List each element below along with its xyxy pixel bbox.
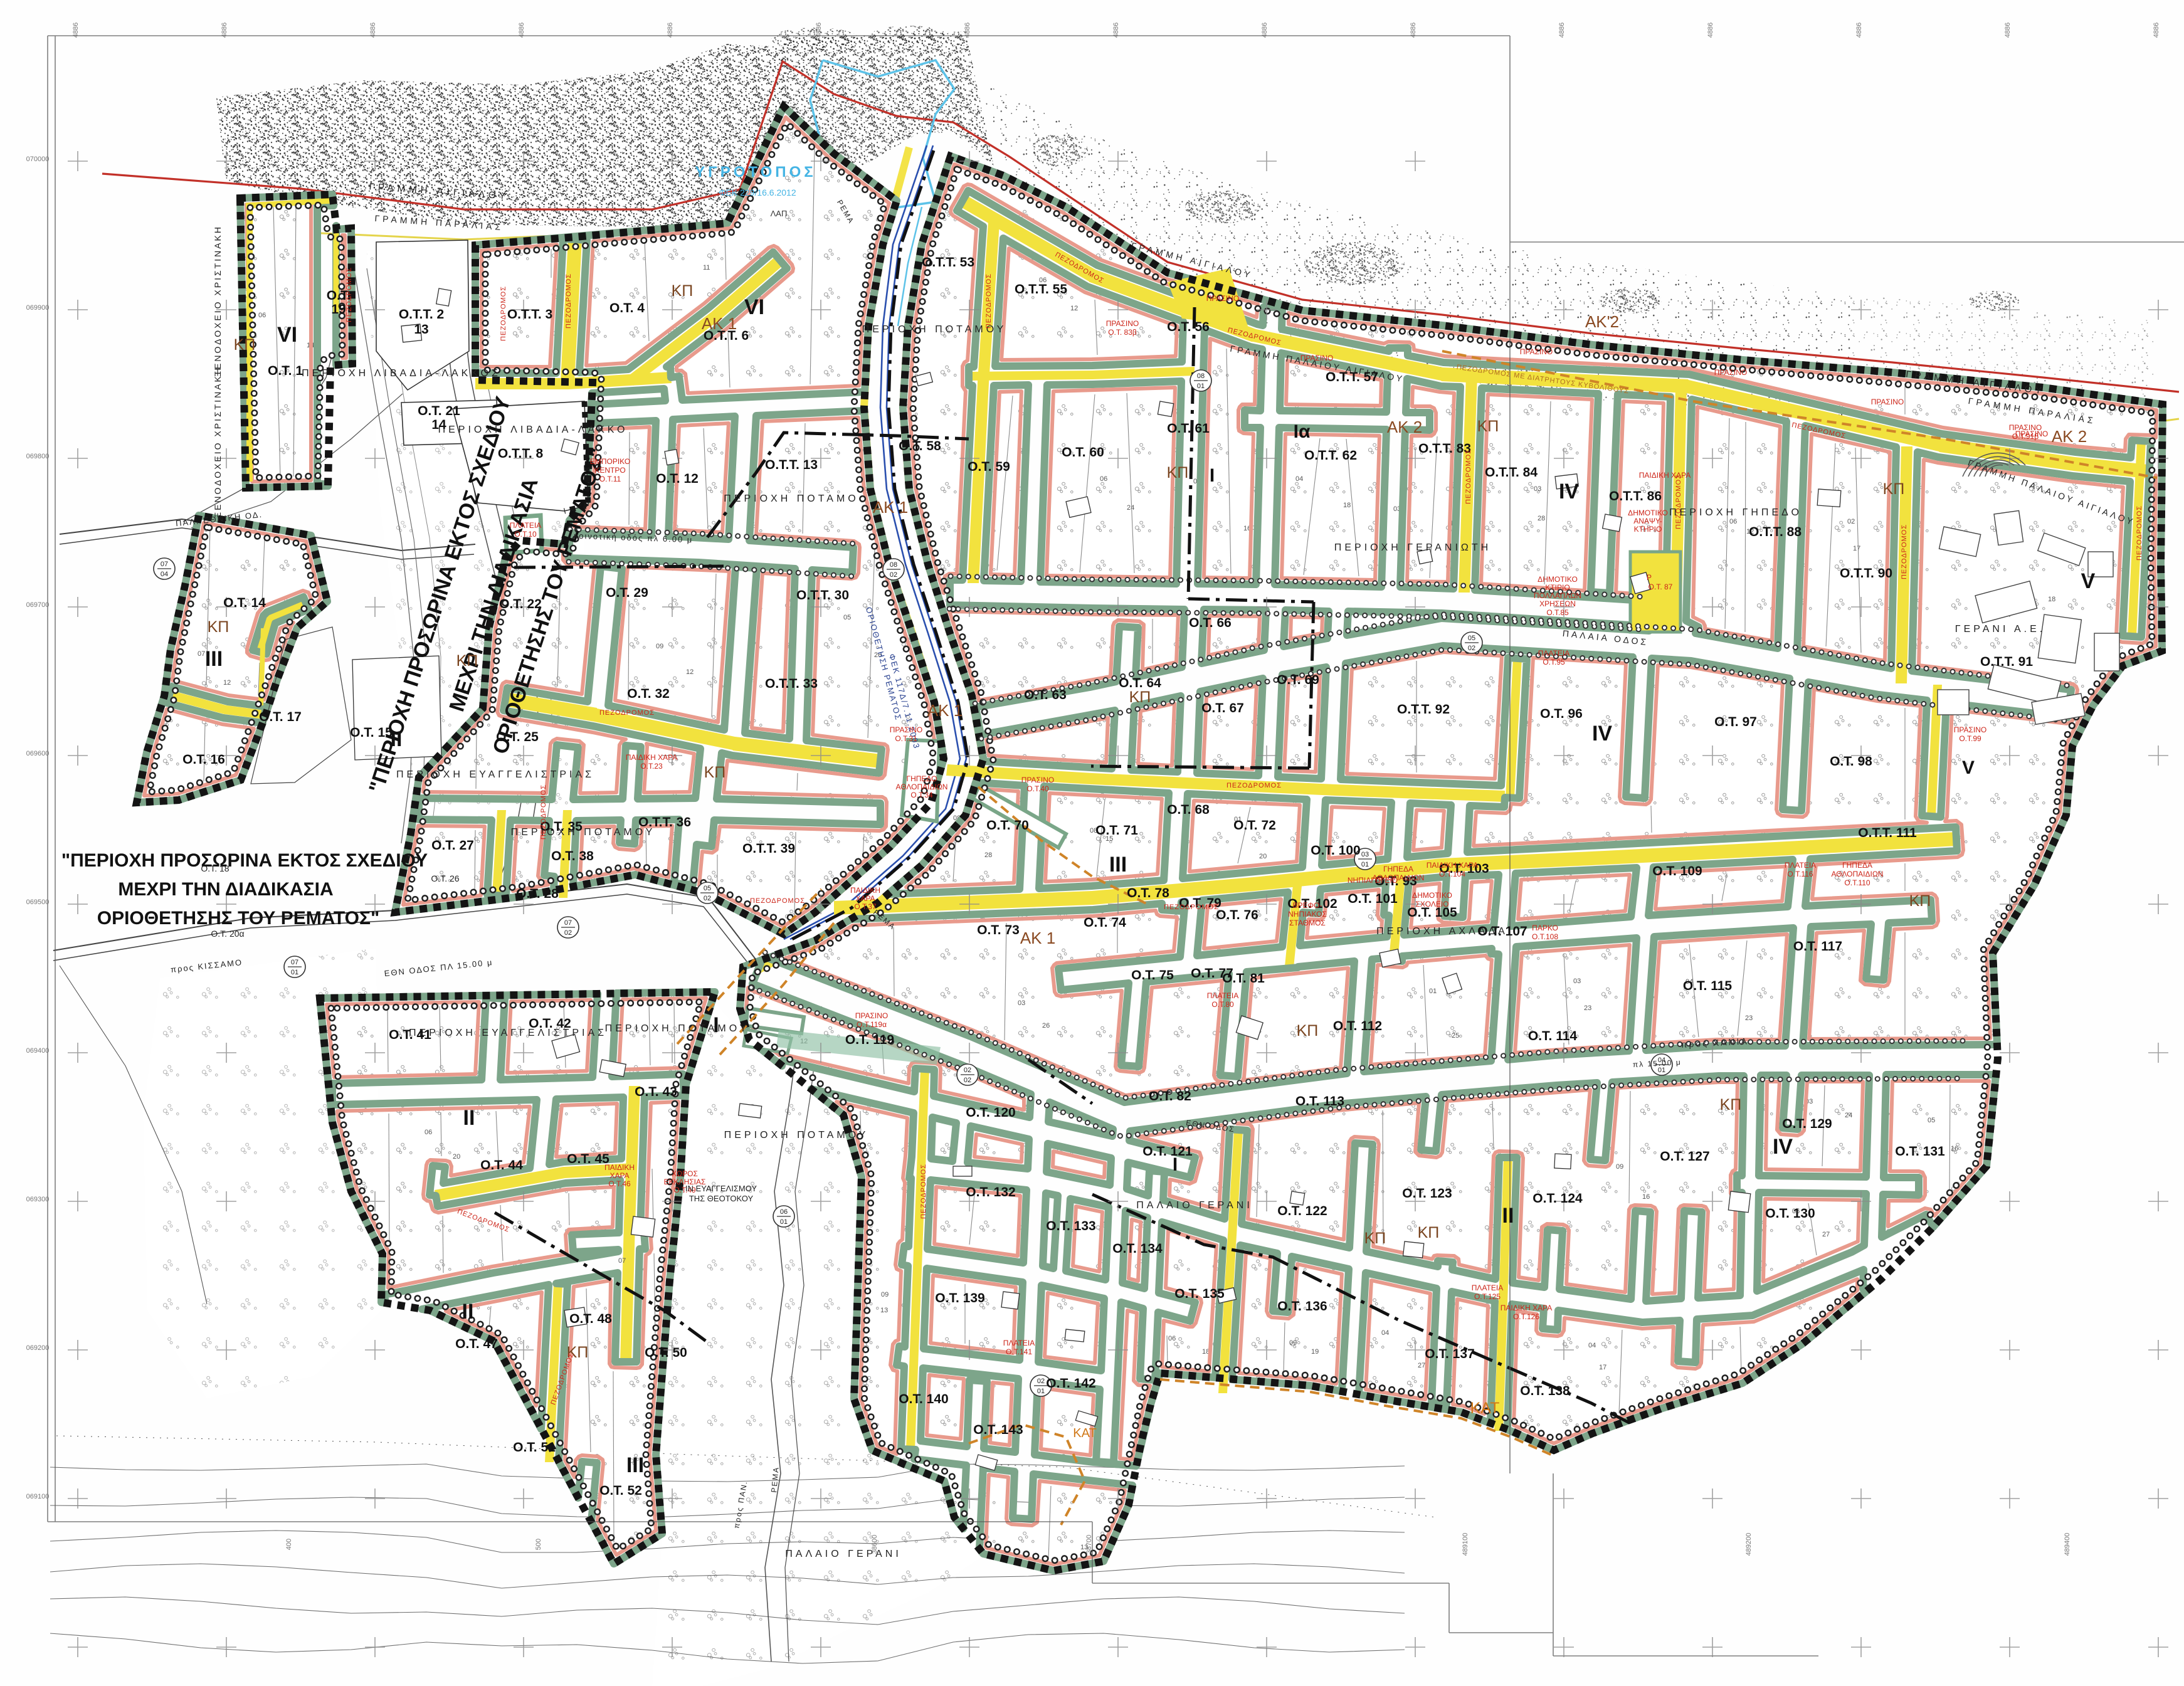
svg-text:O.T. 122: O.T. 122 bbox=[1277, 1204, 1327, 1218]
svg-text:O.T. 124: O.T. 124 bbox=[1532, 1191, 1583, 1206]
svg-text:O.T. 71: O.T. 71 bbox=[1095, 823, 1138, 838]
svg-text:III: III bbox=[205, 647, 223, 671]
svg-text:ΠΕΡΙΟΧΗ ΠΟΤΑΜΟΥ: ΠΕΡΙΟΧΗ ΠΟΤΑΜΟΥ bbox=[511, 827, 656, 838]
svg-text:ΠΕΖΟΔΡΟΜΟΣ: ΠΕΖΟΔΡΟΜΟΣ bbox=[1465, 449, 1472, 504]
svg-text:O.T.T. 53: O.T.T. 53 bbox=[922, 255, 974, 270]
svg-text:ΚΠ: ΚΠ bbox=[456, 652, 478, 670]
svg-text:O.T. 121: O.T. 121 bbox=[1142, 1144, 1193, 1159]
svg-text:4886: 4886 bbox=[1855, 23, 1863, 38]
svg-text:O.T. 56: O.T. 56 bbox=[1167, 320, 1210, 334]
svg-text:O.T. 44: O.T. 44 bbox=[480, 1158, 523, 1172]
svg-text:V: V bbox=[2081, 569, 2096, 593]
svg-text:069800: 069800 bbox=[26, 453, 50, 460]
svg-text:O.T. 51: O.T. 51 bbox=[513, 1440, 556, 1455]
svg-text:O.T. 130: O.T. 130 bbox=[1765, 1206, 1815, 1221]
svg-text:Ο.Τ.40: Ο.Τ.40 bbox=[1026, 784, 1049, 793]
svg-text:ΠΕΖΟΔΡΟΜΟΣ: ΠΕΖΟΔΡΟΜΟΣ bbox=[2136, 505, 2143, 561]
svg-text:II: II bbox=[1502, 1204, 1514, 1228]
svg-text:ΓΗΠΕΔΑ: ΓΗΠΕΔΑ bbox=[1383, 865, 1413, 873]
svg-text:ΠΕΖΟΔΡΟΜΟΣ: ΠΕΖΟΔΡΟΜΟΣ bbox=[985, 273, 993, 329]
svg-text:Ια: Ια bbox=[1294, 421, 1311, 442]
svg-text:ΜΕΧΡΙ ΤΗΝ ΔΙΑΔΙΚΑΣΙΑ: ΜΕΧΡΙ ΤΗΝ ΔΙΑΔΙΚΑΣΙΑ bbox=[118, 879, 333, 900]
svg-text:ΚΕΝΤΡΟ: ΚΕΝΤΡΟ bbox=[594, 466, 625, 475]
svg-text:ΚΠ: ΚΠ bbox=[1129, 688, 1151, 706]
svg-text:ΑΚ 1: ΑΚ 1 bbox=[873, 498, 908, 517]
svg-text:01: 01 bbox=[1037, 1388, 1045, 1395]
svg-text:20: 20 bbox=[1259, 853, 1267, 860]
svg-text:ΠΛΑΤΕΙΑ: ΠΛΑΤΕΙΑ bbox=[510, 521, 541, 530]
svg-text:VI: VI bbox=[744, 295, 764, 319]
svg-text:Ο.Τ.23: Ο.Τ.23 bbox=[640, 762, 663, 771]
svg-text:ΚΠ: ΚΠ bbox=[704, 764, 726, 781]
svg-text:O.T. 76: O.T. 76 bbox=[1216, 908, 1258, 922]
svg-text:ΠΕΡΙΟΧΗ ΠΟΤΑΜΟΥ: ΠΕΡΙΟΧΗ ΠΟΤΑΜΟΥ bbox=[605, 1023, 750, 1034]
svg-text:O.T.T. 83: O.T.T. 83 bbox=[1418, 441, 1471, 456]
svg-text:ΤΗΣ ΘΕΟΤΟΚΟΥ: ΤΗΣ ΘΕΟΤΟΚΟΥ bbox=[689, 1194, 754, 1203]
svg-text:O.T. 27: O.T. 27 bbox=[431, 838, 474, 853]
svg-text:ΚΠ: ΚΠ bbox=[234, 336, 256, 354]
svg-text:12: 12 bbox=[1070, 305, 1078, 312]
svg-text:Ο.Τ.85: Ο.Τ.85 bbox=[1546, 608, 1569, 617]
svg-text:ΠΕΖΟΔΡΟΜΟΣ: ΠΕΖΟΔΡΟΜΟΣ bbox=[565, 273, 572, 329]
svg-text:O.T. 73: O.T. 73 bbox=[977, 923, 1020, 937]
svg-text:V: V bbox=[1962, 757, 1975, 778]
svg-text:26: 26 bbox=[1042, 1022, 1050, 1030]
svg-text:4886: 4886 bbox=[221, 23, 228, 38]
svg-text:Ο.Τ.80: Ο.Τ.80 bbox=[1211, 1000, 1234, 1009]
svg-text:02: 02 bbox=[564, 929, 572, 937]
svg-text:ΠΛΑΤΕΙΑ: ΠΛΑΤΕΙΑ bbox=[1207, 991, 1238, 1000]
svg-text:O.T. 135: O.T. 135 bbox=[1174, 1287, 1225, 1301]
svg-text:O.T. 98: O.T. 98 bbox=[1830, 754, 1872, 769]
svg-text:O.T. 78: O.T. 78 bbox=[1127, 886, 1169, 900]
svg-text:Ο.Τ. 26: Ο.Τ. 26 bbox=[431, 873, 459, 883]
svg-text:Ο.Τ.108: Ο.Τ.108 bbox=[1532, 932, 1558, 941]
svg-text:O.T. 100: O.T. 100 bbox=[1311, 843, 1360, 858]
svg-text:4886: 4886 bbox=[1261, 23, 1269, 38]
svg-text:O.T. 43: O.T. 43 bbox=[635, 1085, 677, 1099]
svg-text:O.T.T. 39: O.T.T. 39 bbox=[742, 841, 795, 856]
svg-text:04: 04 bbox=[1381, 1329, 1389, 1337]
svg-text:ΠΡΑΣΙΝΟ: ΠΡΑΣΙΝΟ bbox=[2015, 429, 2049, 438]
svg-text:III: III bbox=[626, 1453, 644, 1477]
svg-text:O.T.T. 2: O.T.T. 2 bbox=[399, 307, 444, 322]
svg-text:O.T.T. 88: O.T.T. 88 bbox=[1749, 525, 1802, 539]
svg-text:Ο.Τ.95: Ο.Τ.95 bbox=[1543, 658, 1565, 666]
svg-text:ΠΡΑΣΙΝΟ: ΠΡΑΣΙΝΟ bbox=[1871, 398, 1904, 406]
svg-text:ΠΡΑΣΙΝΟ: ΠΡΑΣΙΝΟ bbox=[1954, 725, 1987, 734]
svg-text:O.T.T. 90: O.T.T. 90 bbox=[1840, 566, 1892, 581]
svg-text:Ρ: Ρ bbox=[1647, 573, 1652, 582]
svg-text:ΦΕΚ 229/16.6.2012: ΦΕΚ 229/16.6.2012 bbox=[719, 187, 796, 198]
svg-text:ΑΘΛΟΠΑΙΔΙΩΝ: ΑΘΛΟΠΑΙΔΙΩΝ bbox=[1832, 870, 1884, 878]
svg-text:489400: 489400 bbox=[2064, 1533, 2071, 1556]
svg-text:ΠΕΖΟΔΡΟΜΟΣ: ΠΕΖΟΔΡΟΜΟΣ bbox=[1227, 782, 1282, 789]
svg-text:Ο.Τ.116: Ο.Τ.116 bbox=[1787, 870, 1813, 878]
svg-text:ΠΕΡΙΟΧΗ ΛΙΒΑΔΙΑ-ΛΑΚΚΟ: ΠΕΡΙΟΧΗ ΛΙΒΑΔΙΑ-ΛΑΚΚΟ bbox=[438, 424, 628, 435]
svg-text:O.T.T. 8: O.T.T. 8 bbox=[498, 446, 544, 461]
svg-text:ΠΑΙΔΙΚΗ ΧΑΡΑ: ΠΑΙΔΙΚΗ ΧΑΡΑ bbox=[1427, 861, 1478, 870]
svg-text:38700: 38700 bbox=[1085, 1535, 1093, 1554]
svg-text:ΔΗΜΟΤΙΚΟ: ΔΗΜΟΤΙΚΟ bbox=[1538, 575, 1578, 584]
svg-text:ΙΝ ΕΥΑΓΓΕΛΙΣΜΟΥ: ΙΝ ΕΥΑΓΓΕΛΙΣΜΟΥ bbox=[685, 1184, 757, 1193]
svg-text:06: 06 bbox=[1168, 1335, 1176, 1342]
svg-text:O.T. 114: O.T. 114 bbox=[1528, 1029, 1578, 1043]
svg-text:02: 02 bbox=[964, 1067, 971, 1074]
svg-text:ΛΑΠ: ΛΑΠ bbox=[771, 209, 788, 218]
svg-text:ΧΩΡΟΣ: ΧΩΡΟΣ bbox=[672, 1169, 698, 1178]
svg-text:O.T. 58: O.T. 58 bbox=[899, 439, 941, 453]
svg-text:01: 01 bbox=[1361, 861, 1369, 868]
svg-text:ΠΡΑΣΙΝΟ: ΠΡΑΣΙΝΟ bbox=[1106, 319, 1139, 328]
svg-text:O.T. 38: O.T. 38 bbox=[551, 849, 594, 863]
svg-text:O.T. 32: O.T. 32 bbox=[627, 687, 670, 701]
svg-text:O.T. 136: O.T. 136 bbox=[1277, 1299, 1327, 1314]
svg-text:4886: 4886 bbox=[667, 23, 674, 38]
svg-text:O.T. 96: O.T. 96 bbox=[1540, 707, 1583, 721]
svg-text:4886: 4886 bbox=[1558, 23, 1566, 38]
svg-text:III: III bbox=[1109, 853, 1127, 877]
svg-text:489100: 489100 bbox=[1462, 1533, 1469, 1556]
svg-text:O.T. 66: O.T. 66 bbox=[1189, 616, 1232, 630]
svg-text:ΠΕΡΙΟΧΗ ΛΙΒΑΔΙΑ-ΛΑΚΚΟΣ: ΠΕΡΙΟΧΗ ΛΙΒΑΔΙΑ-ΛΑΚΚΟΣ bbox=[302, 368, 501, 379]
svg-text:Ο.Τ. 20α: Ο.Τ. 20α bbox=[211, 929, 244, 939]
svg-text:07: 07 bbox=[564, 919, 572, 927]
svg-text:ΚΑΤ: ΚΑΤ bbox=[1073, 1426, 1096, 1440]
svg-text:069900: 069900 bbox=[26, 304, 50, 312]
svg-text:O.T. 115: O.T. 115 bbox=[1683, 979, 1733, 993]
svg-text:Ο.Τ.119α: Ο.Τ.119α bbox=[857, 1020, 887, 1029]
svg-text:O.T. 25: O.T. 25 bbox=[496, 730, 539, 744]
svg-text:Ο.Τ.110: Ο.Τ.110 bbox=[1844, 878, 1870, 887]
svg-text:ΚΠ: ΚΠ bbox=[1477, 418, 1499, 435]
svg-text:O.T. 97: O.T. 97 bbox=[1714, 715, 1757, 729]
svg-text:O.T.T. 30: O.T.T. 30 bbox=[796, 588, 849, 603]
svg-text:ΓΗΠΕΔΟ: ΓΗΠΕΔΟ bbox=[906, 774, 937, 783]
svg-text:4886: 4886 bbox=[1707, 23, 1714, 38]
svg-text:09: 09 bbox=[656, 643, 663, 650]
svg-text:08: 08 bbox=[890, 561, 897, 569]
svg-text:06: 06 bbox=[1100, 475, 1107, 483]
svg-text:05: 05 bbox=[704, 885, 711, 892]
svg-text:O.T. 45: O.T. 45 bbox=[567, 1152, 609, 1166]
svg-text:O.T. 61: O.T. 61 bbox=[1167, 421, 1210, 436]
svg-text:05: 05 bbox=[1928, 1117, 1935, 1124]
svg-text:ΠΛΑΤΕΙΑ: ΠΛΑΤΕΙΑ bbox=[1472, 1283, 1503, 1292]
svg-text:ΥΓΡΟΤΟΠΟΣ: ΥΓΡΟΤΟΠΟΣ bbox=[695, 164, 816, 181]
svg-text:ΣΤΑΘΜΟΣ: ΣΤΑΘΜΟΣ bbox=[1289, 919, 1326, 927]
svg-text:06: 06 bbox=[780, 1208, 788, 1216]
svg-text:ΑΝΑΨΥ-: ΑΝΑΨΥ- bbox=[1633, 517, 1662, 525]
svg-text:Ο.Τ.99: Ο.Τ.99 bbox=[1959, 734, 1981, 743]
svg-text:ΧΑΡΑ: ΧΑΡΑ bbox=[855, 894, 875, 903]
svg-text:O.T. 21: O.T. 21 bbox=[418, 404, 460, 418]
svg-text:ΚΠ: ΚΠ bbox=[1720, 1096, 1742, 1114]
svg-text:O.T.T. 62: O.T.T. 62 bbox=[1304, 448, 1357, 463]
svg-text:O.T. 59: O.T. 59 bbox=[968, 460, 1010, 474]
svg-text:ΠΡΑΣΙΝΟ: ΠΡΑΣΙΝΟ bbox=[1206, 294, 1240, 303]
svg-text:ΠΕΖΟΔΡΟΜΟΣ: ΠΕΖΟΔΡΟΜΟΣ bbox=[500, 286, 507, 341]
svg-text:II: II bbox=[462, 1300, 474, 1324]
svg-text:ΠΡΑΣΙΝΟ: ΠΡΑΣΙΝΟ bbox=[1300, 354, 1334, 362]
svg-text:Ο.Τ.141: Ο.Τ.141 bbox=[1006, 1347, 1032, 1356]
svg-text:ΧΡΗΣΕΩΝ: ΧΡΗΣΕΩΝ bbox=[1539, 599, 1576, 608]
svg-text:O.T. 67: O.T. 67 bbox=[1201, 701, 1244, 715]
svg-text:ΠΕΖΟΔΡΟΜΟΣ: ΠΕΖΟΔΡΟΜΟΣ bbox=[346, 267, 353, 322]
svg-text:IV: IV bbox=[1592, 722, 1612, 746]
svg-text:VI: VI bbox=[277, 323, 297, 347]
svg-text:ΑΚ'2: ΑΚ'2 bbox=[1585, 312, 1619, 331]
svg-text:ΣΧΟΛΕΙΟ: ΣΧΟΛΕΙΟ bbox=[1415, 900, 1448, 909]
svg-text:19: 19 bbox=[331, 302, 346, 317]
svg-text:4886: 4886 bbox=[369, 23, 377, 38]
svg-text:ΑΚ 1: ΑΚ 1 bbox=[1020, 929, 1055, 947]
svg-text:O.T.T. 36: O.T.T. 36 bbox=[638, 815, 691, 830]
svg-text:24: 24 bbox=[1127, 504, 1134, 512]
svg-text:07: 07 bbox=[618, 1257, 626, 1265]
svg-text:ΚΠ: ΚΠ bbox=[1297, 1022, 1319, 1040]
svg-text:ΚΠ: ΚΠ bbox=[1364, 1230, 1386, 1247]
svg-text:4886: 4886 bbox=[1410, 23, 1417, 38]
svg-text:09: 09 bbox=[1616, 1163, 1623, 1171]
svg-text:Ο.Τ.11: Ο.Τ.11 bbox=[599, 475, 621, 483]
svg-text:O.T. 42: O.T. 42 bbox=[529, 1016, 571, 1031]
svg-text:ΠΛΑΤΕΙΑ: ΠΛΑΤΕΙΑ bbox=[1003, 1339, 1035, 1347]
svg-text:ΠΡΑΣΙΝΟ: ΠΡΑΣΙΝΟ bbox=[1714, 368, 1748, 377]
svg-text:O.T. 28: O.T. 28 bbox=[516, 887, 559, 901]
svg-text:ΠΛΑΤΕΙΑ: ΠΛΑΤΕΙΑ bbox=[1785, 861, 1816, 870]
svg-text:ΟΡΙΟΘΕΤΗΣΗΣ ΤΟΥ ΡΕΜΑΤΟΣ": ΟΡΙΟΘΕΤΗΣΗΣ ΤΟΥ ΡΕΜΑΤΟΣ" bbox=[97, 908, 380, 929]
svg-text:O.T.T. 84: O.T.T. 84 bbox=[1485, 465, 1538, 480]
svg-text:17: 17 bbox=[1853, 545, 1860, 552]
svg-text:O.T. 139: O.T. 139 bbox=[935, 1291, 984, 1305]
svg-text:O.T. 138: O.T. 138 bbox=[1520, 1384, 1570, 1398]
svg-text:ΚΠ: ΚΠ bbox=[1418, 1224, 1440, 1241]
svg-text:4886: 4886 bbox=[2153, 23, 2160, 38]
svg-text:03: 03 bbox=[1534, 485, 1541, 493]
svg-text:O.T. 41: O.T. 41 bbox=[389, 1028, 431, 1042]
svg-text:O.T. 68: O.T. 68 bbox=[1167, 803, 1210, 817]
svg-text:O.T.T. 3: O.T.T. 3 bbox=[507, 307, 552, 322]
svg-text:070000: 070000 bbox=[26, 155, 50, 163]
svg-text:ΑΚ 2: ΑΚ 2 bbox=[1387, 418, 1422, 436]
svg-text:ΠΑΛΑΙΟ ΓΕΡΑΝΙ: ΠΑΛΑΙΟ ΓΕΡΑΝΙ bbox=[785, 1549, 902, 1559]
svg-text:O.T. 109: O.T. 109 bbox=[1652, 864, 1702, 878]
svg-text:O.T. 120: O.T. 120 bbox=[966, 1105, 1015, 1120]
svg-text:O.T. 140: O.T. 140 bbox=[899, 1392, 948, 1406]
svg-text:O.T. 22: O.T. 22 bbox=[499, 597, 542, 611]
svg-text:03: 03 bbox=[1361, 851, 1369, 858]
svg-text:O.T. 143: O.T. 143 bbox=[973, 1423, 1023, 1437]
svg-text:O.T. 60: O.T. 60 bbox=[1062, 445, 1104, 460]
svg-text:02: 02 bbox=[1468, 645, 1475, 652]
svg-text:Ο.Τ.31: Ο.Τ.31 bbox=[895, 734, 917, 743]
svg-text:O.T. 17: O.T. 17 bbox=[259, 710, 302, 724]
svg-text:O.T. 12: O.T. 12 bbox=[656, 472, 699, 486]
svg-text:Ο.Τ.10: Ο.Τ.10 bbox=[514, 530, 537, 539]
svg-text:O.T. 70: O.T. 70 bbox=[986, 818, 1029, 833]
svg-text:ΝΗΠΙΑΚΟΣ: ΝΗΠΙΑΚΟΣ bbox=[1288, 910, 1327, 919]
svg-text:ΠΕΖΟΔΡΟΜΟΣ: ΠΕΖΟΔΡΟΜΟΣ bbox=[599, 709, 655, 717]
svg-text:ΠΑΙΔΙΚΗ: ΠΑΙΔΙΚΗ bbox=[850, 886, 880, 895]
svg-text:489200: 489200 bbox=[1745, 1533, 1753, 1556]
svg-text:500: 500 bbox=[535, 1539, 542, 1550]
svg-text:ΔΗΜΟΤΙΚΟ: ΔΗΜΟΤΙΚΟ bbox=[1628, 508, 1668, 517]
svg-text:O.T.T. 91: O.T.T. 91 bbox=[1980, 655, 2033, 669]
svg-text:24: 24 bbox=[1845, 1112, 1852, 1119]
svg-text:O.T. 131: O.T. 131 bbox=[1895, 1144, 1945, 1159]
svg-text:069200: 069200 bbox=[26, 1344, 50, 1352]
svg-text:12: 12 bbox=[223, 679, 231, 687]
svg-text:O.T. 72: O.T. 72 bbox=[1233, 818, 1276, 833]
svg-text:O.T. 63: O.T. 63 bbox=[1024, 688, 1067, 702]
svg-text:04: 04 bbox=[1295, 475, 1303, 483]
svg-text:ΠΕΡΙΟΧΗ ΠΟΤΑΜΟ: ΠΕΡΙΟΧΗ ΠΟΤΑΜΟ bbox=[724, 493, 859, 504]
svg-text:ΑΘΛΟΠΑΙΔΙΩΝ: ΑΘΛΟΠΑΙΔΙΩΝ bbox=[896, 782, 948, 791]
svg-text:04: 04 bbox=[161, 571, 168, 578]
svg-text:O.T. 142: O.T. 142 bbox=[1046, 1376, 1095, 1391]
svg-text:ΧΑΡΑ: ΧΑΡΑ bbox=[609, 1171, 629, 1180]
svg-text:IV: IV bbox=[1773, 1135, 1793, 1159]
svg-text:11: 11 bbox=[703, 264, 710, 271]
svg-text:06: 06 bbox=[1729, 518, 1737, 525]
svg-text:ΠΕΖΟΔΡΟΜΟΣ: ΠΕΖΟΔΡΟΜΟΣ bbox=[920, 1164, 927, 1219]
svg-text:09: 09 bbox=[881, 1291, 889, 1299]
svg-text:01: 01 bbox=[291, 969, 298, 976]
svg-text:069600: 069600 bbox=[26, 750, 50, 757]
svg-text:ΠΑΛΑΙΟ ΓΕΡΑΝΙ: ΠΑΛΑΙΟ ΓΕΡΑΝΙ bbox=[1136, 1200, 1253, 1211]
svg-text:O.T.T. 33: O.T.T. 33 bbox=[765, 677, 818, 691]
svg-text:I: I bbox=[1210, 465, 1215, 486]
svg-text:01: 01 bbox=[1429, 988, 1437, 995]
svg-text:O.T. 82: O.T. 82 bbox=[1149, 1089, 1191, 1104]
svg-text:Ο.Τ. 87: Ο.Τ. 87 bbox=[1649, 582, 1673, 591]
svg-text:069300: 069300 bbox=[26, 1196, 50, 1203]
svg-text:ΠΕΖΟΔΡΟΜΟΣ: ΠΕΖΟΔΡΟΜΟΣ bbox=[750, 897, 805, 905]
svg-text:O.T. 113: O.T. 113 bbox=[1295, 1094, 1344, 1109]
svg-text:07: 07 bbox=[291, 959, 298, 966]
svg-text:ΠΑΙΔΙΚΗ ΧΑΡΑ: ΠΑΙΔΙΚΗ ΧΑΡΑ bbox=[1639, 471, 1691, 480]
svg-text:25: 25 bbox=[1452, 1032, 1459, 1040]
svg-text:O.T. 137: O.T. 137 bbox=[1425, 1347, 1474, 1361]
svg-text:23: 23 bbox=[1745, 1014, 1753, 1022]
svg-text:O.T. 50: O.T. 50 bbox=[645, 1346, 687, 1360]
svg-text:ΠΕΖΟΔΡΟΜΟΣ: ΠΕΖΟΔΡΟΜΟΣ bbox=[1675, 474, 1682, 529]
svg-text:ΒΡΕΦΟ-: ΒΡΕΦΟ- bbox=[1293, 901, 1322, 910]
svg-text:O.T. 29: O.T. 29 bbox=[606, 586, 648, 600]
svg-text:Ο.Τ.37: Ο.Τ.37 bbox=[854, 902, 877, 911]
svg-text:O.T.T. 57: O.T.T. 57 bbox=[1326, 370, 1378, 384]
svg-text:20: 20 bbox=[453, 1153, 460, 1161]
svg-text:O.T.T. 111: O.T.T. 111 bbox=[1858, 826, 1917, 840]
svg-text:17: 17 bbox=[1599, 1364, 1606, 1371]
svg-text:4886: 4886 bbox=[964, 23, 971, 38]
svg-text:O.T. 127: O.T. 127 bbox=[1660, 1149, 1709, 1164]
svg-text:ΠΕΡΙΟΧΗ ΓΗΠΕΔΟ: ΠΕΡΙΟΧΗ ΓΗΠΕΔΟ bbox=[1669, 507, 1802, 518]
svg-text:ΚΠ: ΚΠ bbox=[208, 618, 229, 636]
svg-text:02: 02 bbox=[704, 895, 711, 902]
svg-text:16: 16 bbox=[1642, 1193, 1650, 1201]
svg-text:4886: 4886 bbox=[518, 23, 525, 38]
svg-text:O.T. 74: O.T. 74 bbox=[1084, 915, 1126, 930]
svg-text:09: 09 bbox=[1289, 1339, 1297, 1347]
svg-text:O.T. 15: O.T. 15 bbox=[350, 725, 393, 740]
svg-text:28: 28 bbox=[984, 851, 992, 859]
svg-text:ΚΤΙΡΙΟ: ΚΤΙΡΙΟ bbox=[1545, 583, 1569, 592]
svg-text:ΠΡΑΣΙΝΟ: ΠΡΑΣΙΝΟ bbox=[855, 1011, 889, 1020]
svg-text:O.T. 133: O.T. 133 bbox=[1046, 1219, 1095, 1233]
svg-text:ΞΕΝΟΔΟΧΕΙΟ ΧΡΙΣΤΙΝΑΚΗ: ΞΕΝΟΔΟΧΕΙΟ ΧΡΙΣΤΙΝΑΚΗ bbox=[213, 225, 223, 377]
svg-text:O.T.T. 55: O.T.T. 55 bbox=[1015, 282, 1067, 297]
svg-text:27: 27 bbox=[1418, 1362, 1425, 1369]
svg-text:Ο.Τ.46: Ο.Τ.46 bbox=[608, 1179, 631, 1188]
svg-text:18: 18 bbox=[2048, 596, 2055, 603]
svg-text:O.T.T. 86: O.T.T. 86 bbox=[1609, 489, 1662, 503]
svg-text:ΠΟΛΛΑΠΛΩΝ: ΠΟΛΛΑΠΛΩΝ bbox=[1534, 591, 1581, 600]
svg-text:II: II bbox=[463, 1106, 475, 1130]
svg-text:O.T.T. 6: O.T.T. 6 bbox=[704, 329, 749, 343]
svg-text:O.T. 48: O.T. 48 bbox=[569, 1312, 612, 1326]
svg-text:O.T. 119: O.T. 119 bbox=[845, 1033, 894, 1047]
svg-text:Ο.Τ.125: Ο.Τ.125 bbox=[1474, 1292, 1501, 1301]
svg-text:02: 02 bbox=[890, 571, 897, 579]
svg-text:ΓΕΡΑΝΙ Α.Ε.: ΓΕΡΑΝΙ Α.Ε. bbox=[1955, 624, 2045, 635]
svg-text:Ο.Τ.104: Ο.Τ.104 bbox=[1439, 870, 1465, 878]
svg-text:O.T. 101: O.T. 101 bbox=[1348, 892, 1398, 906]
svg-text:ΚΠ: ΚΠ bbox=[1167, 464, 1189, 482]
svg-text:069400: 069400 bbox=[26, 1047, 50, 1055]
svg-text:ΠΕΡΙΟΧΗ ΠΟΤΑΜΟΥ: ΠΕΡΙΟΧΗ ΠΟΤΑΜΟΥ bbox=[724, 1130, 869, 1141]
svg-text:ΠΑΙΔΙΚΗ ΧΑΡΑ: ΠΑΙΔΙΚΗ ΧΑΡΑ bbox=[1501, 1304, 1552, 1312]
svg-text:I: I bbox=[713, 1013, 719, 1037]
svg-text:ΠΕΖΟΔΡΟΜΟΣ: ΠΕΖΟΔΡΟΜΟΣ bbox=[1164, 904, 1219, 911]
svg-text:02: 02 bbox=[1847, 518, 1855, 525]
svg-text:ΚΑΤ: ΚΑΤ bbox=[1470, 1399, 1500, 1417]
svg-text:069500: 069500 bbox=[26, 898, 50, 906]
svg-text:069100: 069100 bbox=[26, 1493, 50, 1500]
svg-text:ΠΡΑΣΙΝΟ: ΠΡΑΣΙΝΟ bbox=[1520, 347, 1553, 356]
svg-text:19: 19 bbox=[1311, 1348, 1319, 1356]
svg-text:O.T. 16: O.T. 16 bbox=[182, 752, 225, 767]
svg-text:06: 06 bbox=[258, 312, 266, 319]
svg-text:01: 01 bbox=[1197, 382, 1205, 390]
svg-text:O.T. 129: O.T. 129 bbox=[1782, 1117, 1832, 1131]
svg-text:O.T. 132: O.T. 132 bbox=[966, 1185, 1015, 1199]
svg-text:ΠΑΙΔΙΚΗ ΧΑΡΑ: ΠΑΙΔΙΚΗ ΧΑΡΑ bbox=[626, 753, 677, 762]
svg-text:ΠΑΡΚΟ: ΠΑΡΚΟ bbox=[1532, 924, 1558, 932]
svg-text:O.T. 1: O.T. 1 bbox=[268, 364, 303, 378]
svg-text:14: 14 bbox=[431, 418, 446, 432]
svg-text:02: 02 bbox=[1037, 1378, 1045, 1385]
svg-text:ΠΕΡΙΟΧΗ ΕΥΑΓΓΕΛΙΣΤΡΙΑΣ: ΠΕΡΙΟΧΗ ΕΥΑΓΓΕΛΙΣΤΡΙΑΣ bbox=[396, 769, 594, 780]
svg-text:O.T.T. 92: O.T.T. 92 bbox=[1397, 702, 1450, 717]
svg-text:O.T. 117: O.T. 117 bbox=[1793, 939, 1842, 954]
svg-text:4886: 4886 bbox=[815, 23, 823, 38]
svg-text:ΠΡΑΣΙΝΟ: ΠΡΑΣΙΝΟ bbox=[890, 725, 923, 734]
svg-text:ΠΕΡΙΟΧΗ ΕΥΑΓΓΕΛΙΣΤΡΙΑΣ: ΠΕΡΙΟΧΗ ΕΥΑΓΓΕΛΙΣΤΡΙΑΣ bbox=[409, 1028, 607, 1038]
svg-text:IV: IV bbox=[1559, 480, 1579, 503]
svg-text:08: 08 bbox=[1197, 372, 1205, 380]
svg-text:06: 06 bbox=[425, 1129, 432, 1136]
svg-text:O.T. 64: O.T. 64 bbox=[1119, 676, 1161, 690]
svg-text:ΑΚ 1: ΑΚ 1 bbox=[927, 701, 963, 720]
svg-text:O.T. 107: O.T. 107 bbox=[1477, 924, 1527, 939]
svg-text:ΚΤΗΡΙΟ: ΚΤΗΡΙΟ bbox=[1634, 525, 1662, 534]
svg-text:05: 05 bbox=[1468, 635, 1475, 642]
svg-text:400: 400 bbox=[285, 1539, 293, 1550]
svg-text:O.T. 123: O.T. 123 bbox=[1402, 1186, 1452, 1201]
svg-text:16: 16 bbox=[1951, 1145, 1958, 1152]
